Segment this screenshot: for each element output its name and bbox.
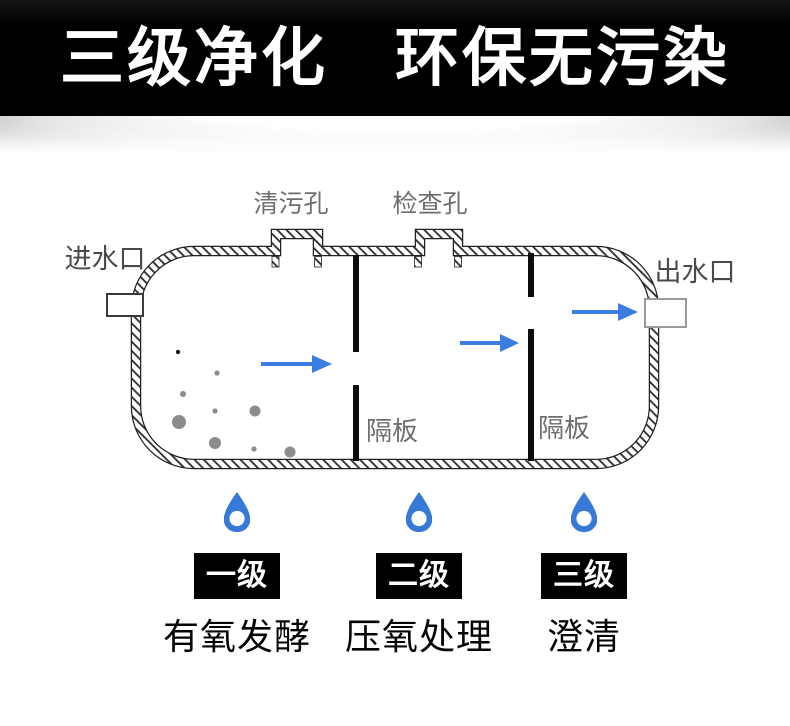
- infographic-page: 三级净化 环保无污染: [0, 0, 790, 726]
- water-drop-icon: [571, 492, 597, 532]
- water-drop-icon: [224, 492, 250, 532]
- stage-process-label: 有氧发酵: [163, 608, 311, 660]
- flow-arrow-icon: [460, 334, 519, 352]
- flow-arrow-icon: [261, 355, 332, 373]
- banner-shine-divider: [0, 116, 790, 154]
- baffle-2-label: 隔板: [538, 414, 590, 443]
- inlet-label: 进水口: [65, 245, 146, 275]
- baffle-1-label: 隔板: [366, 417, 418, 446]
- outlet-label: 出水口: [655, 258, 736, 288]
- flow-arrow-icon: [572, 303, 638, 321]
- clean-hole-label: 清污孔: [253, 191, 328, 219]
- baffle-1: [353, 255, 359, 461]
- header-banner: 三级净化 环保无污染: [0, 0, 790, 116]
- stage-column-2: 二级 压氧处理: [345, 492, 493, 660]
- stage-column-1: 一级 有氧发酵: [163, 492, 311, 660]
- stage-level-badge: 一级: [194, 553, 280, 599]
- inlet-pipe: [107, 294, 143, 316]
- stage-level-badge: 三级: [541, 553, 627, 599]
- stage-level-badge: 二级: [376, 553, 462, 599]
- page-title: 三级净化 环保无污染: [60, 26, 730, 90]
- stage-process-label: 澄清: [547, 608, 621, 660]
- manhole-flange-stubs: [272, 257, 462, 268]
- baffle-2: [528, 253, 534, 461]
- stage-column-3: 三级 澄清: [541, 492, 627, 660]
- inspection-hole-label: 检查孔: [392, 191, 467, 219]
- stage-process-label: 压氧处理: [345, 608, 493, 660]
- outlet-pipe: [645, 299, 686, 327]
- water-drop-icon: [406, 492, 432, 532]
